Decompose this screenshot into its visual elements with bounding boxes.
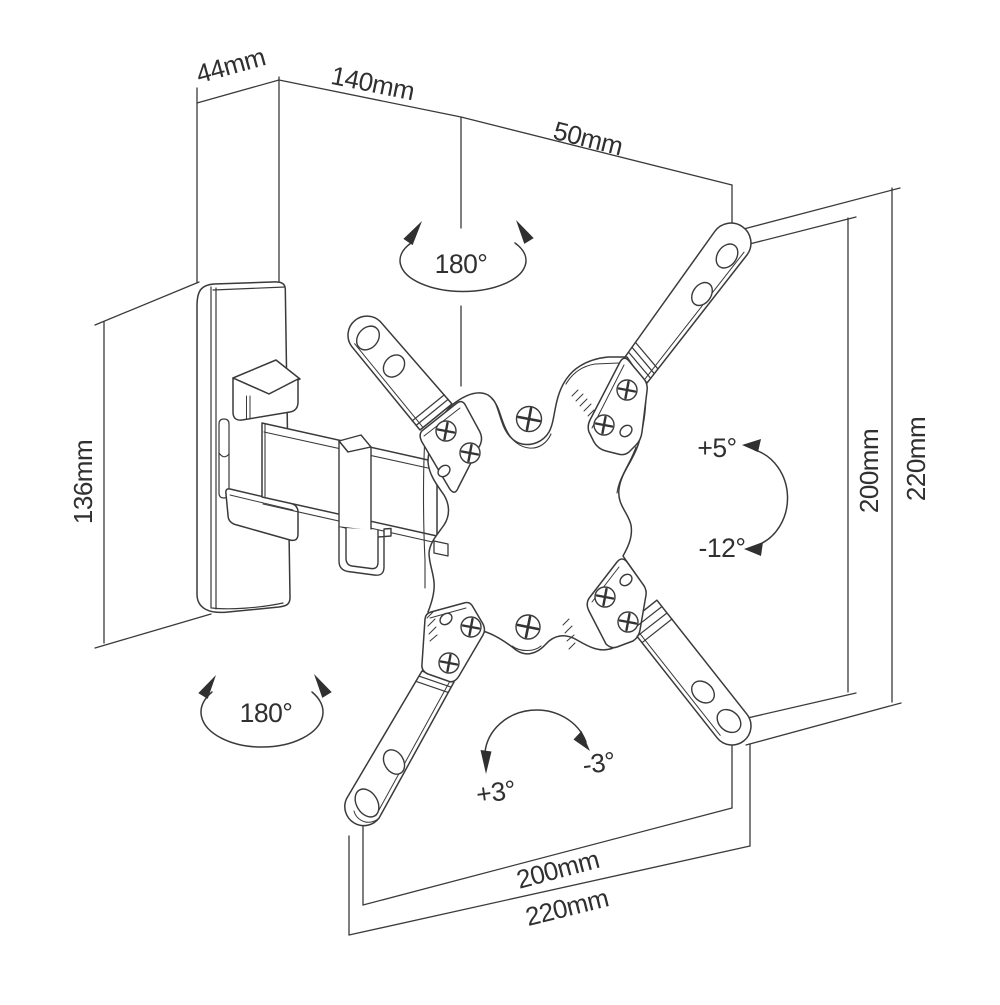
svg-text:50mm: 50mm (550, 115, 625, 161)
svg-text:136mm: 136mm (68, 440, 98, 524)
svg-text:180°: 180° (435, 249, 488, 279)
svg-text:200mm: 200mm (854, 429, 884, 513)
svg-text:+5°: +5° (697, 433, 736, 463)
svg-text:+3°: +3° (474, 774, 517, 809)
svg-text:-12°: -12° (699, 533, 746, 563)
svg-text:-3°: -3° (580, 746, 617, 780)
svg-text:180°: 180° (240, 698, 293, 728)
svg-text:44mm: 44mm (193, 41, 269, 89)
svg-text:220mm: 220mm (901, 417, 931, 501)
